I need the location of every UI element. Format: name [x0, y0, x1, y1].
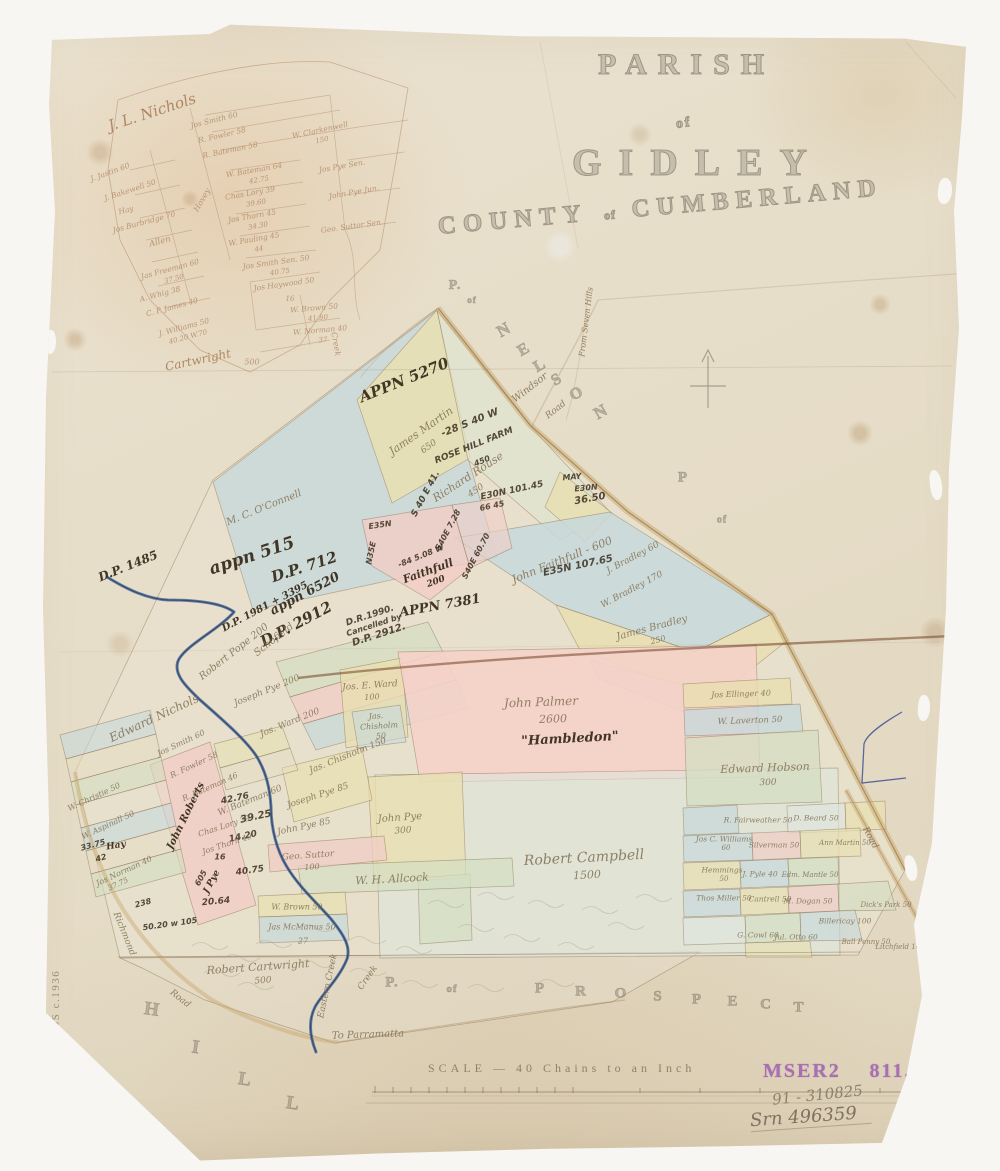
edge-hole	[958, 786, 968, 802]
map-label: Robert Campbell	[523, 847, 644, 869]
map-label: John Pye	[377, 811, 422, 825]
map-label: Jos Pye Sen.	[318, 158, 366, 175]
map-label: To Parramatta	[332, 1028, 405, 1042]
catalogue-stamp: MSER2 811.1/2	[763, 1060, 943, 1083]
map-label: 50	[720, 875, 729, 883]
map-label: J. Justin 60	[89, 161, 131, 184]
map-label: N	[590, 400, 612, 424]
map-label: W. Laverton 50	[717, 715, 782, 727]
paper-sheet: P.ofNELSONPofP.ofPROSPECTHILLAPPN 5270ap…	[0, 0, 1000, 1171]
map-label: 300	[759, 778, 777, 789]
map-label: 42	[94, 852, 107, 864]
map-label: E	[514, 339, 533, 360]
map-label: Dick's Park 50	[860, 901, 911, 909]
map-label: 500	[254, 975, 272, 986]
map-label: S	[548, 370, 566, 391]
map-label: Jos Smith 60	[156, 728, 206, 758]
map-label: 44	[254, 244, 264, 253]
map-label: M. Dogan 50	[783, 897, 832, 906]
map-label: From Seven Hills	[577, 287, 594, 358]
map-label: R. Fowler 58	[197, 125, 246, 145]
map-label: Edward Hobson	[720, 760, 810, 776]
map-label: D. Beard 50	[793, 814, 838, 823]
map-label: 100	[304, 862, 320, 872]
map-label: Jos Ellinger 40	[711, 688, 771, 699]
map-label: W. Aspinall 50	[80, 809, 136, 841]
map-label: 34.30	[247, 220, 268, 231]
map-label: 100	[364, 692, 380, 702]
map-label: 27	[298, 937, 308, 946]
map-label: P	[692, 992, 702, 1009]
map-label: Robert Cartwright	[206, 957, 310, 977]
map-label: I	[190, 1037, 201, 1060]
map-label: W. H. Allcock	[355, 871, 429, 888]
map-label: Windsor	[510, 371, 550, 406]
stamp-ref: 811.1/2	[870, 1060, 943, 1083]
map-label: 1500	[573, 868, 602, 882]
map-labels-layer: P.ofNELSONPofP.ofPROSPECTHILLAPPN 5270ap…	[0, 0, 1000, 1171]
map-label: Litchfield 100	[875, 943, 924, 951]
map-label: Jas.	[368, 711, 383, 721]
map-label: Hay	[105, 839, 126, 852]
map-label: John Palmer	[504, 694, 579, 711]
county-of-word: of	[603, 207, 616, 223]
map-label: "Hambledon"	[521, 729, 619, 749]
map-label: of	[467, 295, 477, 305]
map-label: Billericay 100	[819, 917, 872, 926]
map-label: G. Cowl 60	[737, 931, 779, 940]
map-label: P	[678, 470, 688, 487]
map-label: Jas. Chisholm 150	[308, 736, 388, 776]
map-title-of: of	[675, 115, 693, 133]
map-label: W. Christie 50	[66, 781, 121, 813]
map-label: 500	[244, 358, 259, 367]
map-label: Road	[168, 988, 193, 1010]
map-label: E	[727, 994, 738, 1011]
map-label: R. Fairweather 50	[724, 816, 793, 825]
map-label: Jul. Otto 60	[774, 933, 818, 942]
map-label: 41.80	[308, 313, 329, 323]
map-label: E35N	[368, 519, 392, 531]
map-label: L	[285, 1092, 302, 1116]
map-label: 250	[649, 634, 666, 647]
map-label: W. Brown 50	[290, 301, 339, 314]
map-label: 42.75	[248, 174, 269, 185]
map-label: John Pye 85	[276, 816, 331, 837]
map-label: of	[446, 983, 457, 995]
map-label: R. Fowler 58	[169, 750, 220, 780]
map-label: Hay	[117, 204, 134, 217]
map-label: Joseph Pye 200	[233, 673, 302, 708]
map-label: John Pye Jun.	[328, 183, 380, 201]
scale-text: SCALE — 40 Chains to an Inch	[428, 1061, 695, 1076]
map-label: Chisholm	[360, 720, 399, 732]
map-label: Silverman 50	[749, 841, 800, 850]
stamp-series: MSER2	[763, 1060, 841, 1083]
map-label: APPN 7381	[398, 591, 482, 620]
map-label: 50	[376, 731, 387, 741]
map-label: R. Bateman 58	[202, 140, 259, 160]
map-label: APPN 5270	[357, 354, 452, 406]
map-label: S	[653, 989, 662, 1006]
map-label: W. Brown 50	[271, 903, 322, 912]
map-label: O	[615, 986, 628, 1003]
map-label: L	[237, 1068, 254, 1092]
map-label: W. Norman 40	[293, 323, 348, 337]
map-label: 20.64	[201, 896, 230, 908]
map-label: N35E	[364, 541, 378, 566]
map-label: N	[493, 318, 515, 342]
map-label: 40.75	[235, 864, 265, 878]
map-label: 238	[134, 896, 152, 909]
map-label: Thos Miller 50	[696, 894, 751, 903]
map-label: Cartwright	[164, 346, 232, 374]
map-label: 16	[214, 853, 225, 862]
map-label: 150	[315, 135, 330, 146]
map-label: Jos C. Williams	[696, 835, 753, 844]
map-label: Edm. Mantle 50	[782, 871, 839, 879]
map-label: Jos. E. Ward	[342, 679, 398, 693]
map-label: 16	[286, 295, 295, 303]
side-accession-stamp: Don REDSS c.1936	[50, 932, 62, 1082]
map-label: 40.75	[270, 267, 291, 278]
map-label: H	[143, 998, 162, 1022]
map-label: P	[535, 981, 545, 998]
map-label: Creek	[329, 331, 342, 356]
map-label: Road	[544, 399, 569, 421]
map-label: J. Pyle 40	[742, 870, 777, 879]
map-label: Jos Haywood 50	[253, 275, 315, 292]
map-title-parish: PARISH	[598, 48, 775, 82]
map-label: Geo. Suttor Sen.	[320, 217, 384, 235]
map-label: S40E 60.70	[460, 532, 492, 581]
map-label: Joseph Pye 85	[286, 781, 350, 810]
map-label: 37	[318, 336, 328, 345]
map-label: P.	[449, 278, 462, 294]
map-label: Geo. Suttor	[282, 849, 335, 863]
map-label: Eastern Creek	[316, 953, 339, 1019]
map-label: P.	[385, 975, 399, 992]
map-label: Allen	[148, 234, 172, 249]
map-label: T	[793, 1000, 804, 1017]
parish-map-scan: P.ofNELSONPofP.ofPROSPECTHILLAPPN 5270ap…	[0, 0, 1000, 1171]
map-label: Ann Martin 50	[819, 839, 871, 847]
map-label: Hovey	[192, 187, 213, 214]
map-label: 36.50	[573, 491, 606, 507]
map-label: R	[575, 984, 587, 1001]
map-label: J. L. Nichols	[106, 89, 198, 134]
map-title-gidley: GIDLEY	[572, 141, 824, 185]
map-label: M. C. O'Connell	[225, 488, 303, 528]
map-label: Richmond	[111, 911, 138, 957]
map-label: 39.60	[245, 197, 266, 208]
map-label: 50.20 w 105	[142, 916, 198, 933]
map-label: Jos. Ward 200	[259, 707, 321, 740]
map-label: Creek	[356, 964, 380, 992]
map-label: J. Bakewell 50	[103, 177, 157, 202]
map-label: 300	[394, 825, 412, 836]
map-label: of	[717, 515, 727, 526]
map-label: Hemmings	[701, 866, 742, 875]
map-label: C	[760, 997, 772, 1014]
map-label: 2600	[539, 712, 567, 726]
map-label: E30N 101.45	[480, 479, 545, 502]
map-label: Jas McManus 50	[268, 923, 335, 932]
map-label: D.P. 1485	[96, 548, 160, 585]
map-label: MAY	[562, 472, 582, 483]
map-label: 60	[722, 844, 731, 852]
map-label: O	[567, 383, 588, 405]
map-label: 650	[419, 438, 439, 456]
